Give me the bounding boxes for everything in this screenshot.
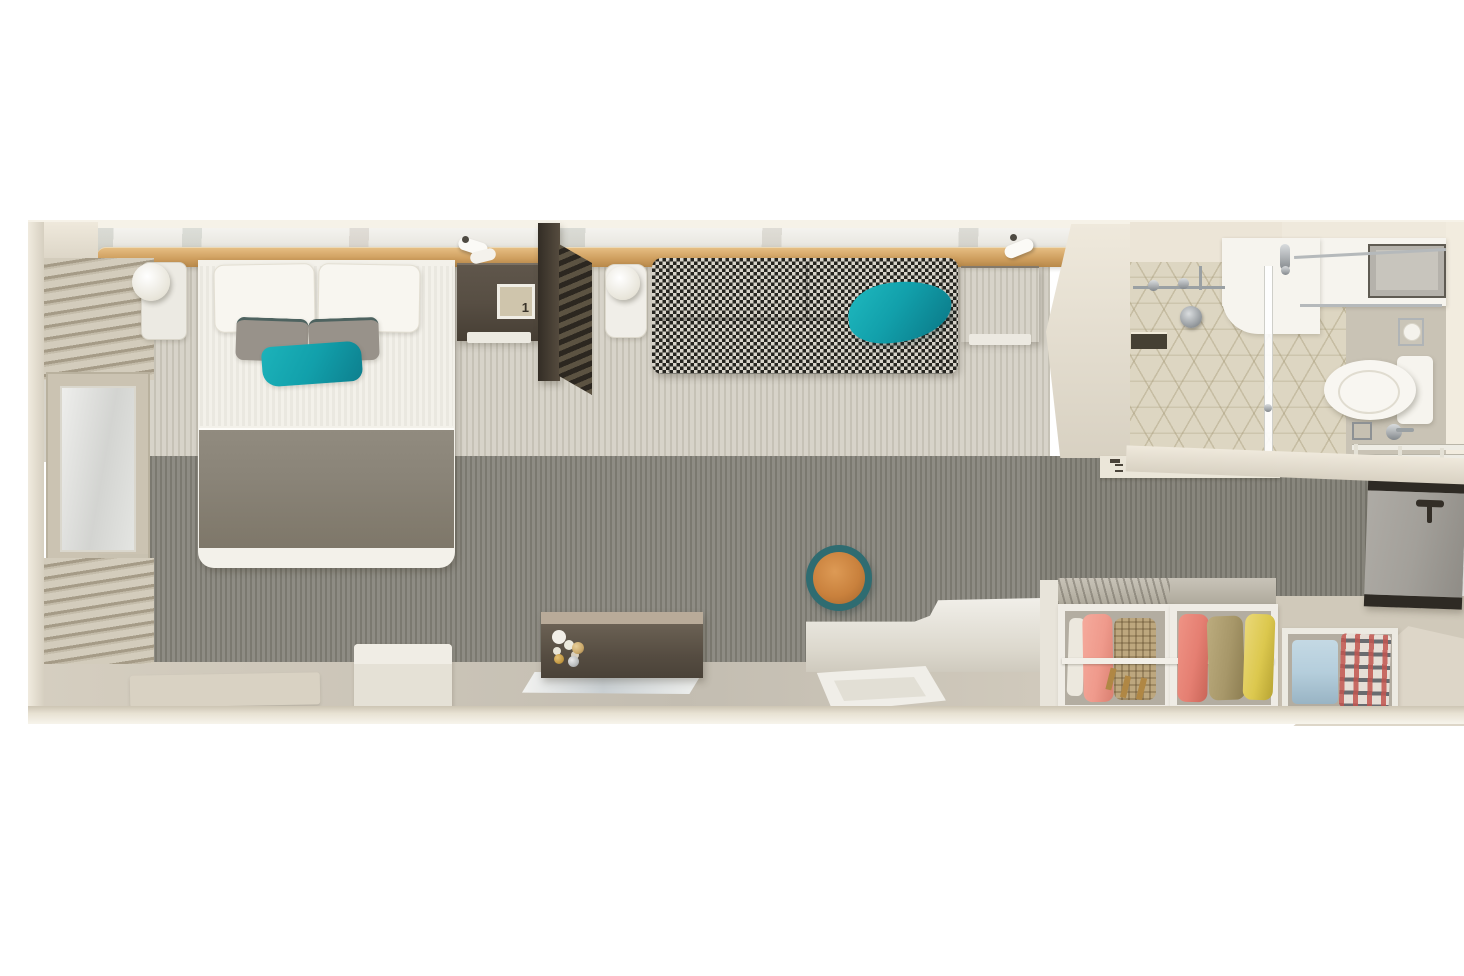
desk-drawer — [467, 332, 531, 343]
toilet-seat-line — [1338, 370, 1400, 414]
floor-mat — [130, 672, 321, 707]
picture-digit: 1 — [522, 301, 529, 314]
shower-pipe-vertical — [1199, 266, 1202, 290]
cloth-olive — [1207, 615, 1246, 700]
sofa-side-table-drawer — [969, 334, 1031, 345]
glass-partition — [1264, 266, 1273, 464]
room-divider-slats — [559, 244, 592, 395]
vanity-towel-bar — [1300, 304, 1442, 307]
coat-hook — [1110, 459, 1120, 463]
spotlight-dot-left — [462, 236, 469, 243]
door-handle-stem — [1427, 505, 1432, 523]
sideboard — [541, 612, 703, 678]
towel-shelf-inner — [1376, 250, 1438, 290]
floor-drain — [1352, 422, 1372, 440]
room-divider-bar — [538, 223, 560, 381]
bed-step-top — [354, 644, 452, 664]
shower-valve-1 — [1148, 280, 1159, 291]
sideboard-knob-silver — [568, 656, 579, 667]
shower-head — [1180, 306, 1202, 328]
bed-pillow-teal — [261, 341, 364, 388]
tp-roll — [1403, 323, 1421, 341]
bidet-sprayer — [1386, 424, 1402, 440]
sofa-arm-left — [668, 260, 670, 372]
spotlight-dot-right — [1010, 234, 1017, 241]
sofa-side-table — [961, 266, 1039, 342]
entry-door — [1364, 480, 1464, 609]
blinds-lower — [42, 558, 154, 664]
sideboard-knob-gold — [572, 642, 584, 654]
bed-blanket — [199, 428, 454, 548]
cloth-blue-folded — [1292, 640, 1338, 704]
bidet-sprayer-bar — [1396, 428, 1414, 432]
towel-rail-bottom-1 — [1352, 444, 1464, 450]
stateroom-floorplan: 1 — [0, 0, 1464, 976]
desk-picture: 1 — [497, 284, 535, 319]
wardrobe-end-panel — [1040, 580, 1060, 712]
bottom-wall — [28, 706, 1464, 724]
glass-handle — [1264, 404, 1272, 412]
shower-niche — [1131, 332, 1167, 349]
bath-right-wall — [1446, 222, 1464, 474]
cloth-salmon — [1177, 614, 1209, 703]
left-wall — [28, 222, 44, 716]
faucet-base — [1281, 266, 1290, 275]
window-glass — [60, 386, 136, 552]
lamp-left — [132, 263, 170, 301]
cloth-plaid — [1339, 633, 1392, 709]
sofa-cushion-divider — [805, 262, 808, 318]
cloth-yellow — [1243, 614, 1276, 701]
flowers — [552, 630, 566, 644]
stool-seat — [813, 552, 865, 604]
lamp-middle — [606, 266, 640, 300]
shower-valve-2 — [1178, 278, 1189, 289]
sideboard-bottle — [554, 654, 564, 664]
